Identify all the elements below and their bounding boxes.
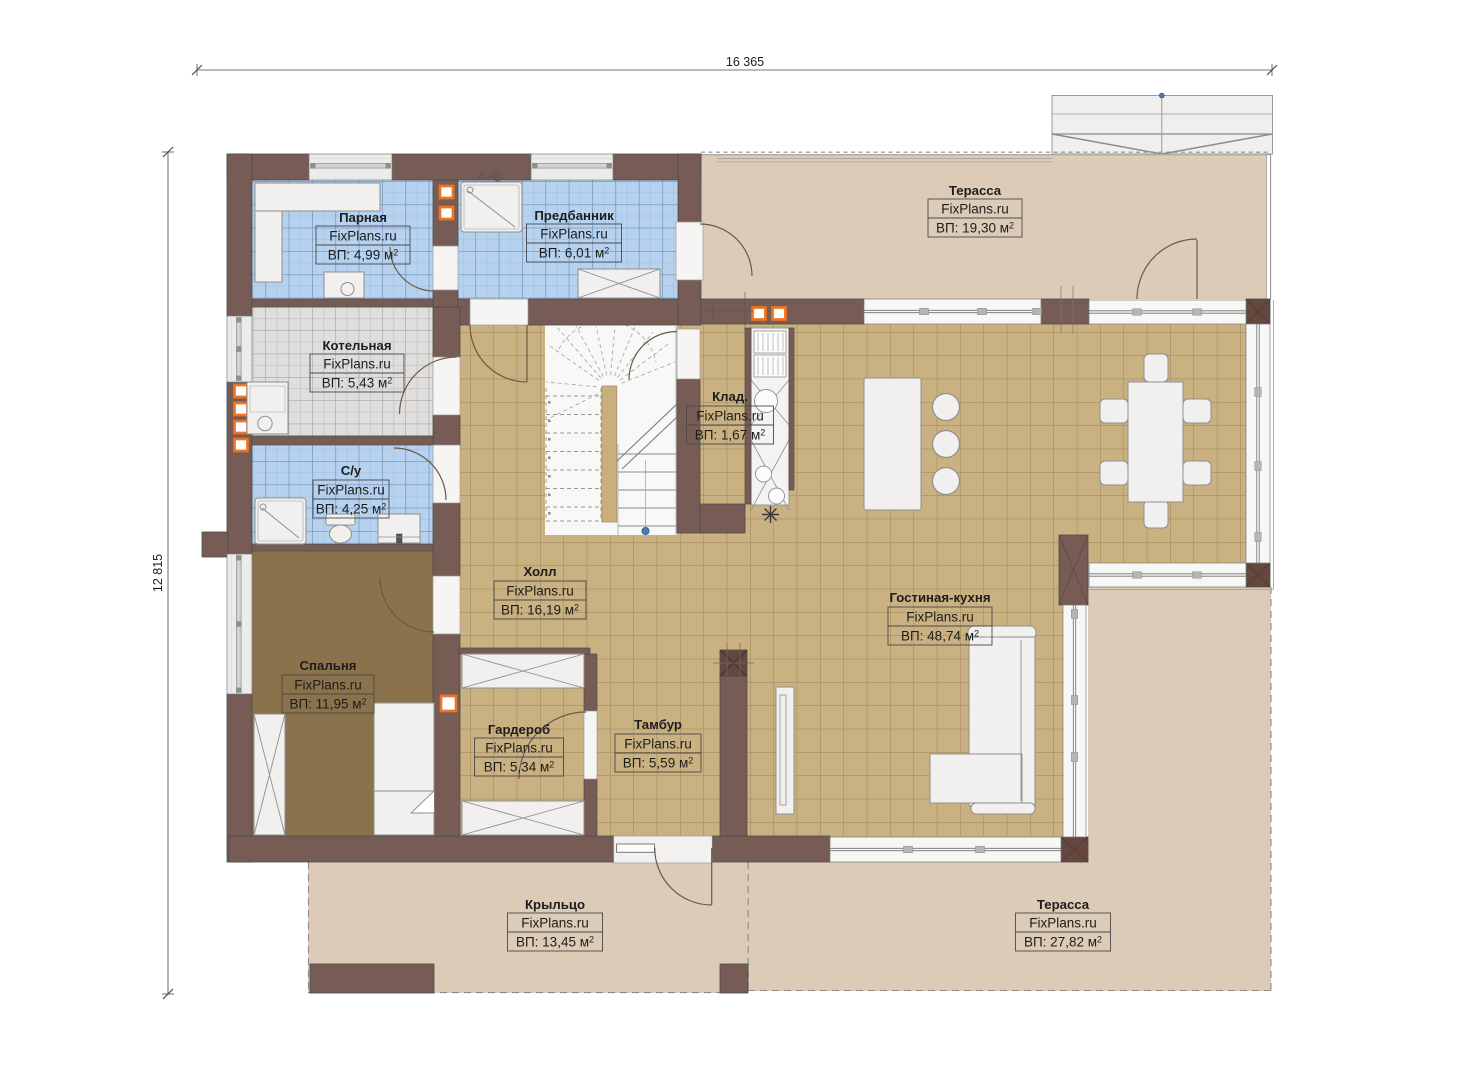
svg-text:Холл: Холл <box>523 564 556 579</box>
svg-text:Терасса: Терасса <box>1037 897 1090 912</box>
svg-text:ВП: 6,01 м2: ВП: 6,01 м2 <box>539 246 610 261</box>
svg-text:16 365: 16 365 <box>726 55 764 69</box>
svg-text:FixPlans.ru: FixPlans.ru <box>696 409 764 424</box>
svg-text:Крыльцо: Крыльцо <box>525 897 585 912</box>
svg-text:Котельная: Котельная <box>322 338 391 353</box>
svg-text:FixPlans.ru: FixPlans.ru <box>485 741 553 756</box>
svg-text:FixPlans.ru: FixPlans.ru <box>506 584 574 599</box>
svg-text:Спальня: Спальня <box>300 658 357 673</box>
svg-text:Тамбур: Тамбур <box>634 717 682 732</box>
svg-text:Парная: Парная <box>339 210 387 225</box>
svg-text:Гостиная-кухня: Гостиная-кухня <box>889 590 990 605</box>
svg-text:ВП: 11,95 м2: ВП: 11,95 м2 <box>289 697 366 712</box>
svg-text:FixPlans.ru: FixPlans.ru <box>329 229 397 244</box>
svg-text:FixPlans.ru: FixPlans.ru <box>540 227 608 242</box>
svg-text:ВП: 13,45 м2: ВП: 13,45 м2 <box>516 935 594 950</box>
svg-text:Клад.: Клад. <box>712 389 748 404</box>
svg-text:ВП: 1,67 м2: ВП: 1,67 м2 <box>695 428 766 443</box>
svg-text:12 815: 12 815 <box>151 554 165 592</box>
svg-text:ВП: 27,82 м2: ВП: 27,82 м2 <box>1024 935 1102 950</box>
svg-text:FixPlans.ru: FixPlans.ru <box>521 916 589 931</box>
svg-text:ВП: 16,19 м2: ВП: 16,19 м2 <box>501 603 579 618</box>
svg-text:Гардероб: Гардероб <box>488 722 550 737</box>
svg-text:ВП: 4,25 м2: ВП: 4,25 м2 <box>316 502 387 517</box>
svg-text:ВП: 5,43 м2: ВП: 5,43 м2 <box>322 376 393 391</box>
svg-text:FixPlans.ru: FixPlans.ru <box>906 610 974 625</box>
svg-text:Терасса: Терасса <box>949 183 1002 198</box>
svg-text:FixPlans.ru: FixPlans.ru <box>323 357 391 372</box>
svg-text:FixPlans.ru: FixPlans.ru <box>294 678 362 693</box>
svg-text:ВП: 19,30 м2: ВП: 19,30 м2 <box>936 221 1014 236</box>
svg-text:ВП: 48,74 м2: ВП: 48,74 м2 <box>901 629 979 644</box>
svg-text:ВП: 5,59 м2: ВП: 5,59 м2 <box>623 756 694 771</box>
svg-text:FixPlans.ru: FixPlans.ru <box>317 483 385 498</box>
svg-text:FixPlans.ru: FixPlans.ru <box>624 737 692 752</box>
svg-text:Предбанник: Предбанник <box>534 208 614 223</box>
svg-text:ВП: 5,34 м2: ВП: 5,34 м2 <box>484 760 555 775</box>
svg-text:ВП: 4,99 м2: ВП: 4,99 м2 <box>328 248 399 263</box>
svg-text:FixPlans.ru: FixPlans.ru <box>941 202 1009 217</box>
svg-text:С/у: С/у <box>341 463 362 478</box>
svg-text:FixPlans.ru: FixPlans.ru <box>1029 916 1097 931</box>
